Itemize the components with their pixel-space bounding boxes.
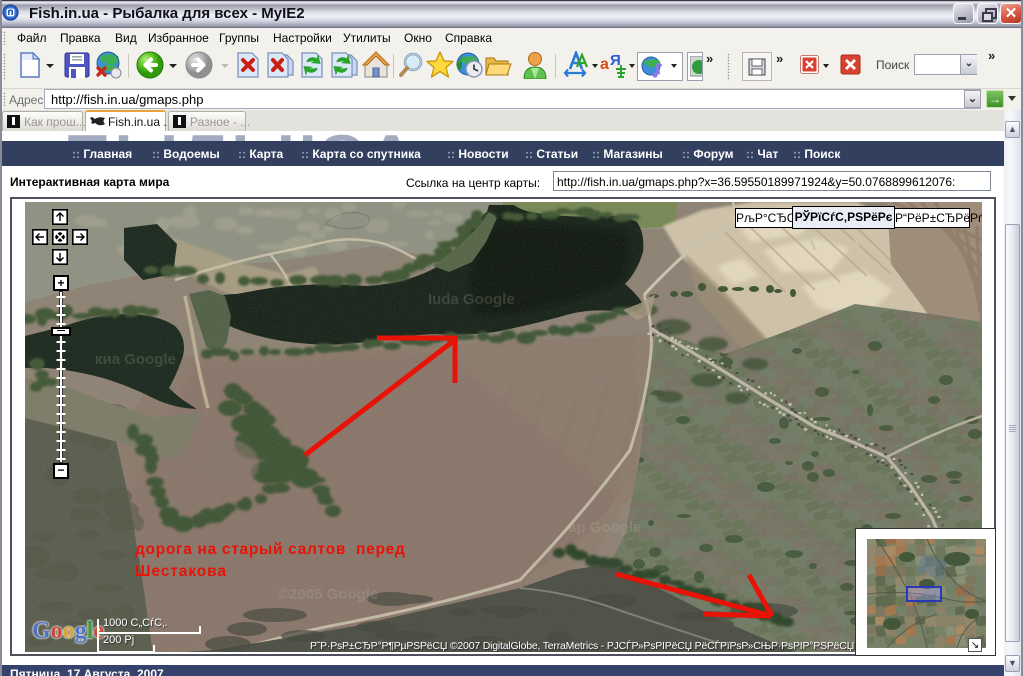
svg-text:Я: Я <box>610 52 621 69</box>
svg-text:дорога на старый салтов перед: дорога на старый салтов перед <box>135 541 405 558</box>
svg-text:Шестакова: Шестакова <box>135 563 227 580</box>
svg-text:а: а <box>600 56 609 73</box>
